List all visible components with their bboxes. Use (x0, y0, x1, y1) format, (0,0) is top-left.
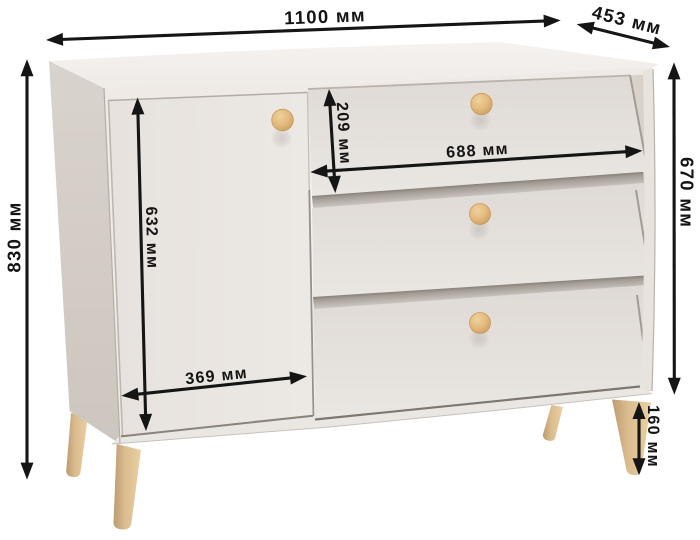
svg-text:830 мм: 830 мм (4, 201, 25, 272)
svg-text:209 мм: 209 мм (333, 102, 355, 166)
svg-text:670 мм: 670 мм (677, 157, 698, 228)
svg-text:632 мм: 632 мм (142, 206, 162, 269)
svg-text:160 мм: 160 мм (644, 405, 662, 468)
svg-text:1100 мм: 1100 мм (284, 4, 367, 28)
